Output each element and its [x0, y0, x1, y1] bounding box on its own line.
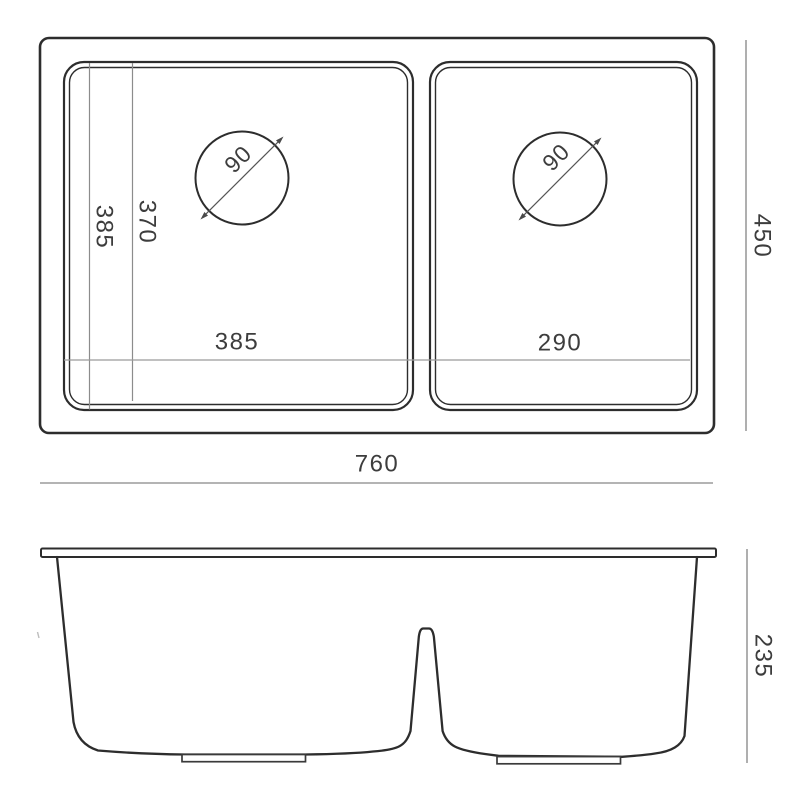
dim-bowl-depth-inner-label: 370 [134, 200, 161, 245]
stray-mark [38, 632, 40, 638]
front-body-outline [57, 557, 697, 757]
front-rim-bar [41, 549, 716, 558]
dim-left-bowl-width-label: 385 [215, 329, 260, 356]
left-drain-plate [182, 755, 306, 762]
dim-right-bowl-width-label: 290 [538, 330, 583, 357]
right-drain-plate [497, 757, 621, 764]
dim-overall-width-label: 760 [355, 451, 400, 478]
top-view: 385 370 90 90 385 290 760 450 [40, 38, 776, 483]
sink-dimension-diagram: 385 370 90 90 385 290 760 450 235 [0, 0, 800, 794]
dim-bowl-depth-outer-label: 385 [91, 205, 118, 250]
diagram-canvas: 385 370 90 90 385 290 760 450 235 [0, 0, 800, 794]
front-view: 235 [38, 549, 777, 764]
dim-front-height-label: 235 [750, 634, 777, 679]
dim-overall-depth-label: 450 [749, 214, 776, 259]
